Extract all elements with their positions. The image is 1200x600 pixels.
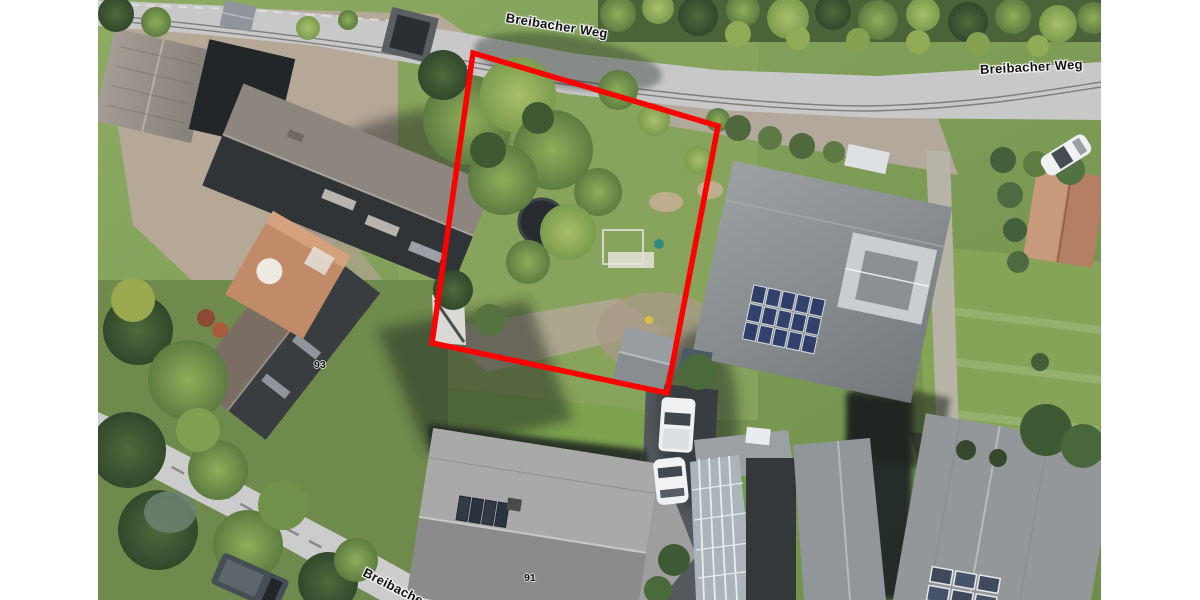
- red-shrub: [212, 322, 228, 338]
- building-conservatory: [690, 427, 886, 600]
- aerial-map[interactable]: Breibacher Weg Breibacher Weg Breibacher…: [98, 0, 1101, 600]
- map-viewport: Breibacher Weg Breibacher Weg Breibacher…: [0, 0, 1200, 600]
- red-shrub: [197, 309, 215, 327]
- house-number-93: 93: [314, 359, 326, 371]
- teal-bin: [654, 239, 664, 249]
- dirt-patch: [649, 192, 683, 212]
- van-white: [658, 397, 696, 453]
- yellow-object: [645, 316, 653, 324]
- dirt-patch: [697, 181, 723, 199]
- aerial-scene: [98, 0, 1101, 600]
- house-number-91: 91: [524, 572, 536, 584]
- car-white-2: [653, 456, 690, 505]
- round-tent: [144, 491, 196, 533]
